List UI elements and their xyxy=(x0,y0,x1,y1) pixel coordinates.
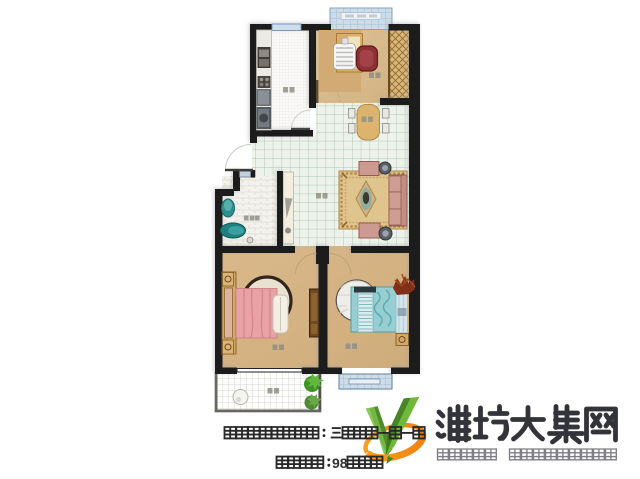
svg-text:98: 98 xyxy=(332,455,348,471)
